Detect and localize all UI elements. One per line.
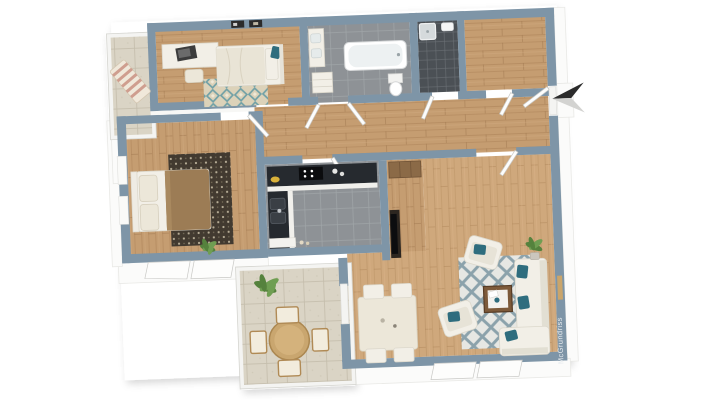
pillow xyxy=(140,204,159,231)
dining-chair xyxy=(363,284,384,299)
window xyxy=(117,156,127,184)
window xyxy=(119,196,129,224)
floor-plan: McGrundriss xyxy=(103,5,595,395)
wall-ladder-rack xyxy=(557,276,563,300)
tilted-window-pane xyxy=(430,362,477,380)
tilted-window-pane xyxy=(144,261,191,281)
wall-art-icon xyxy=(231,21,244,28)
floor-storage-room xyxy=(464,16,548,91)
tilted-window-pane xyxy=(190,259,235,279)
kitchen-appliance xyxy=(269,238,295,248)
watermark: McGrundriss xyxy=(555,317,566,364)
accent-pillow xyxy=(516,265,528,279)
wall-hall-bottom-3 xyxy=(516,146,558,156)
floorplan-svg: McGrundriss xyxy=(0,0,711,400)
sink-basin xyxy=(270,212,285,224)
accent-pillow xyxy=(517,295,530,310)
balcony-door-frame xyxy=(340,284,349,324)
outdoor-chair xyxy=(312,329,329,352)
dining-chair xyxy=(366,348,387,363)
entrance-door-frame xyxy=(549,87,557,115)
cooktop xyxy=(299,167,323,181)
sink-basin xyxy=(270,198,285,210)
dining-table xyxy=(358,295,418,351)
sink xyxy=(311,34,321,43)
wardrobe xyxy=(389,161,422,178)
tilted-window-pane xyxy=(476,360,523,378)
dining-chair xyxy=(394,347,415,362)
dining-chair xyxy=(391,283,412,298)
bath-cabinet xyxy=(312,72,333,93)
sink xyxy=(311,49,321,58)
outdoor-chair xyxy=(278,360,301,377)
desk-chair xyxy=(185,69,203,83)
outdoor-chair xyxy=(250,331,267,354)
wall-living-balcony-lower xyxy=(341,324,351,362)
floorplan-render: McGrundriss xyxy=(0,0,711,400)
small-sink xyxy=(441,23,453,31)
outdoor-chair xyxy=(276,307,299,324)
toilet xyxy=(390,82,403,96)
wall-living-balcony-upper xyxy=(338,258,348,286)
pillow xyxy=(139,175,158,202)
